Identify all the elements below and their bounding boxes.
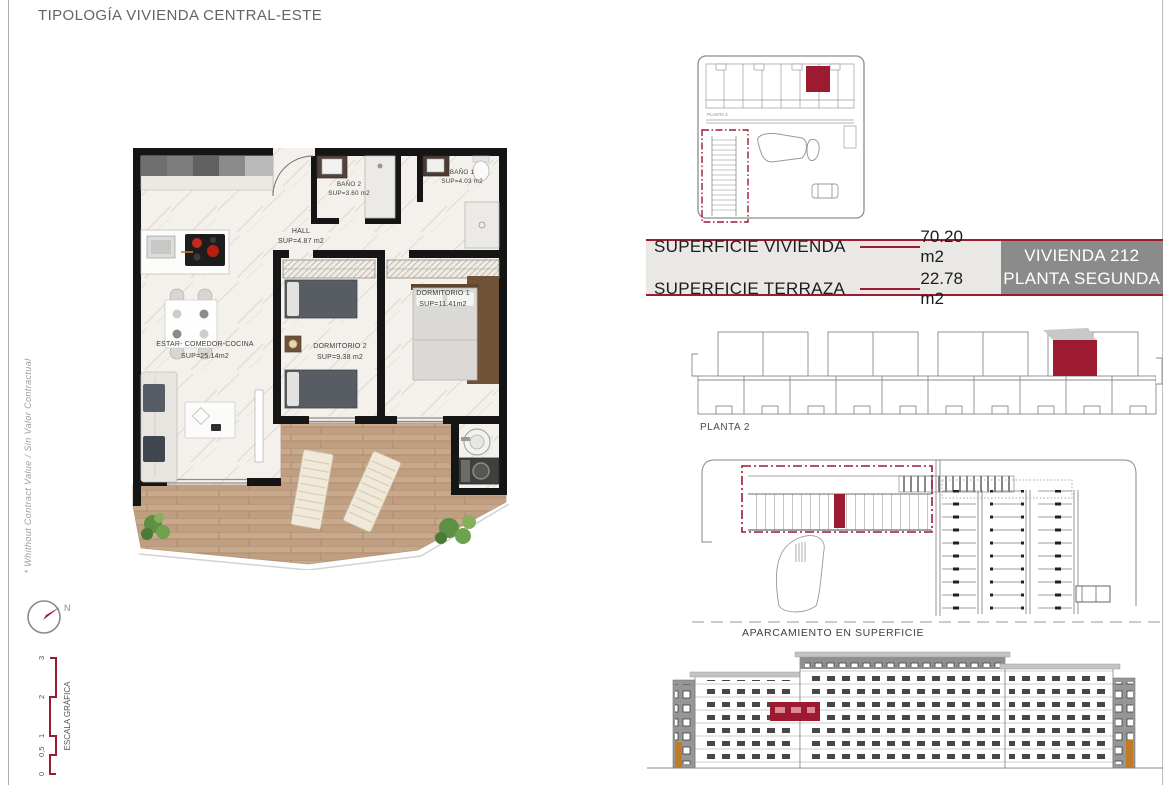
scale-tick-0: 0 <box>37 772 46 776</box>
kitchen-counter <box>141 156 273 190</box>
scale-tick-2: 2 <box>37 695 46 699</box>
surface-row-terraza: SUPERFICIE TERRAZA 22.78 m2 <box>654 269 993 309</box>
plan-sheet: TIPOLOGÍA VIVIENDA CENTRAL-ESTE * Whitho… <box>0 0 1170 785</box>
scale-tick-1: 1 <box>37 734 46 738</box>
unit-number: VIVIENDA 212 <box>1024 245 1139 268</box>
planta2-overview-drawing: PLANTA 2 <box>688 318 1168 433</box>
unit-identity-box: VIVIENDA 212 PLANTA SEGUNDA <box>1001 241 1163 294</box>
surface-label: SUPERFICIE TERRAZA <box>654 279 860 299</box>
scale-bar-line <box>50 658 56 774</box>
page-left-border <box>8 0 9 785</box>
site-highlighted-unit <box>806 66 830 92</box>
elevation-center-block <box>795 652 1010 768</box>
parking-top-stall-comb <box>899 476 1014 492</box>
scale-title: ESCALA GRÁFICA <box>63 681 72 751</box>
compass-north-label: N <box>64 603 71 613</box>
scale-tick-3: 3 <box>37 656 46 660</box>
room-label-dormitorio1-area: SUP=11.41m2 <box>419 301 466 308</box>
elevation-right-tower <box>1113 678 1135 768</box>
parking-label: APARCAMIENTO EN SUPERFICIE <box>742 627 924 638</box>
surface-row-vivienda: SUPERFICIE VIVIENDA 70.20 m2 <box>654 227 993 267</box>
dormitorio1-double-bed <box>411 284 479 380</box>
coffee-table <box>185 402 235 438</box>
room-label-dormitorio2-area: SUP=9.38 m2 <box>317 354 363 361</box>
room-label-hall-area: SUP=4.87 m2 <box>278 238 324 245</box>
dormitorio2-bed-1 <box>285 280 357 318</box>
summary-table: SUPERFICIE VIVIENDA 70.20 m2 SUPERFICIE … <box>646 239 1163 296</box>
disclaimer-note: * Whithout Contract Value / Sin Valor Co… <box>23 358 33 573</box>
apartment-floor-plan: BAÑO 2 SUP=3.60 m2 BAÑO 1 SUP=4.03 m2 HA… <box>125 140 515 570</box>
elevation-left-tower <box>673 680 695 768</box>
parking-stall-band <box>748 494 932 530</box>
parking-plan-drawing: APARCAMIENTO EN SUPERFICIE <box>684 446 1169 638</box>
scale-tick-05: 0,5 <box>37 747 46 757</box>
planta2-label: PLANTA 2 <box>700 422 750 433</box>
site-building-strip <box>706 64 854 108</box>
compass-circle <box>28 601 60 633</box>
parking-car-lift <box>1076 586 1110 602</box>
room-label-hall-name: HALL <box>292 228 310 235</box>
tv-console <box>255 390 263 462</box>
kitchen-island <box>141 230 229 274</box>
elevation-highlighted-flat <box>770 702 820 721</box>
room-label-bano1-name: BAÑO 1 <box>450 167 475 176</box>
sofa <box>141 372 177 482</box>
parking-highlighted-stall <box>834 494 845 528</box>
surface-rows: SUPERFICIE VIVIENDA 70.20 m2 SUPERFICIE … <box>646 241 1001 294</box>
dormitorio2-nightstand <box>285 336 301 352</box>
room-label-dormitorio2-name: DORMITORIO 2 <box>313 343 367 350</box>
room-label-estar-name: ESTAR- COMEDOR-COCINA <box>156 341 254 348</box>
room-label-bano1-area: SUP=4.03 m2 <box>441 178 483 185</box>
surface-value: 22.78 m2 <box>920 269 992 309</box>
elevation-right-block <box>1000 664 1120 768</box>
red-rule <box>860 246 920 248</box>
surface-value: 70.20 m2 <box>920 227 992 267</box>
unit-floor: PLANTA SEGUNDA <box>1003 268 1160 291</box>
planta2-highlighted-unit <box>1053 340 1097 376</box>
dormitorio2-wardrobe <box>283 260 375 278</box>
north-compass: N <box>20 592 80 640</box>
parking-landscape-blob <box>776 536 824 612</box>
room-label-bano2-area: SUP=3.60 m2 <box>328 190 370 197</box>
graphic-scale: 0 0,5 1 2 3 ESCALA GRÁFICA <box>20 652 84 782</box>
page-title: TIPOLOGÍA VIVIENDA CENTRAL-ESTE <box>38 7 322 24</box>
site-plan-drawing: PLANTA 2 <box>686 50 876 230</box>
building-elevation-drawing <box>645 646 1165 782</box>
dormitorio2-bed-2 <box>285 370 357 408</box>
room-label-bano2-name: BAÑO 2 <box>337 179 362 188</box>
room-label-dormitorio1-name: DORMITORIO 1 <box>416 290 470 297</box>
site-car <box>812 184 838 198</box>
surface-label: SUPERFICIE VIVIENDA <box>654 237 860 257</box>
room-label-estar-area: SUP=25.14m2 <box>181 353 229 360</box>
site-planta-label: PLANTA 2 <box>707 112 728 117</box>
red-rule <box>860 288 920 290</box>
dormitorio1-wardrobe <box>387 260 499 278</box>
